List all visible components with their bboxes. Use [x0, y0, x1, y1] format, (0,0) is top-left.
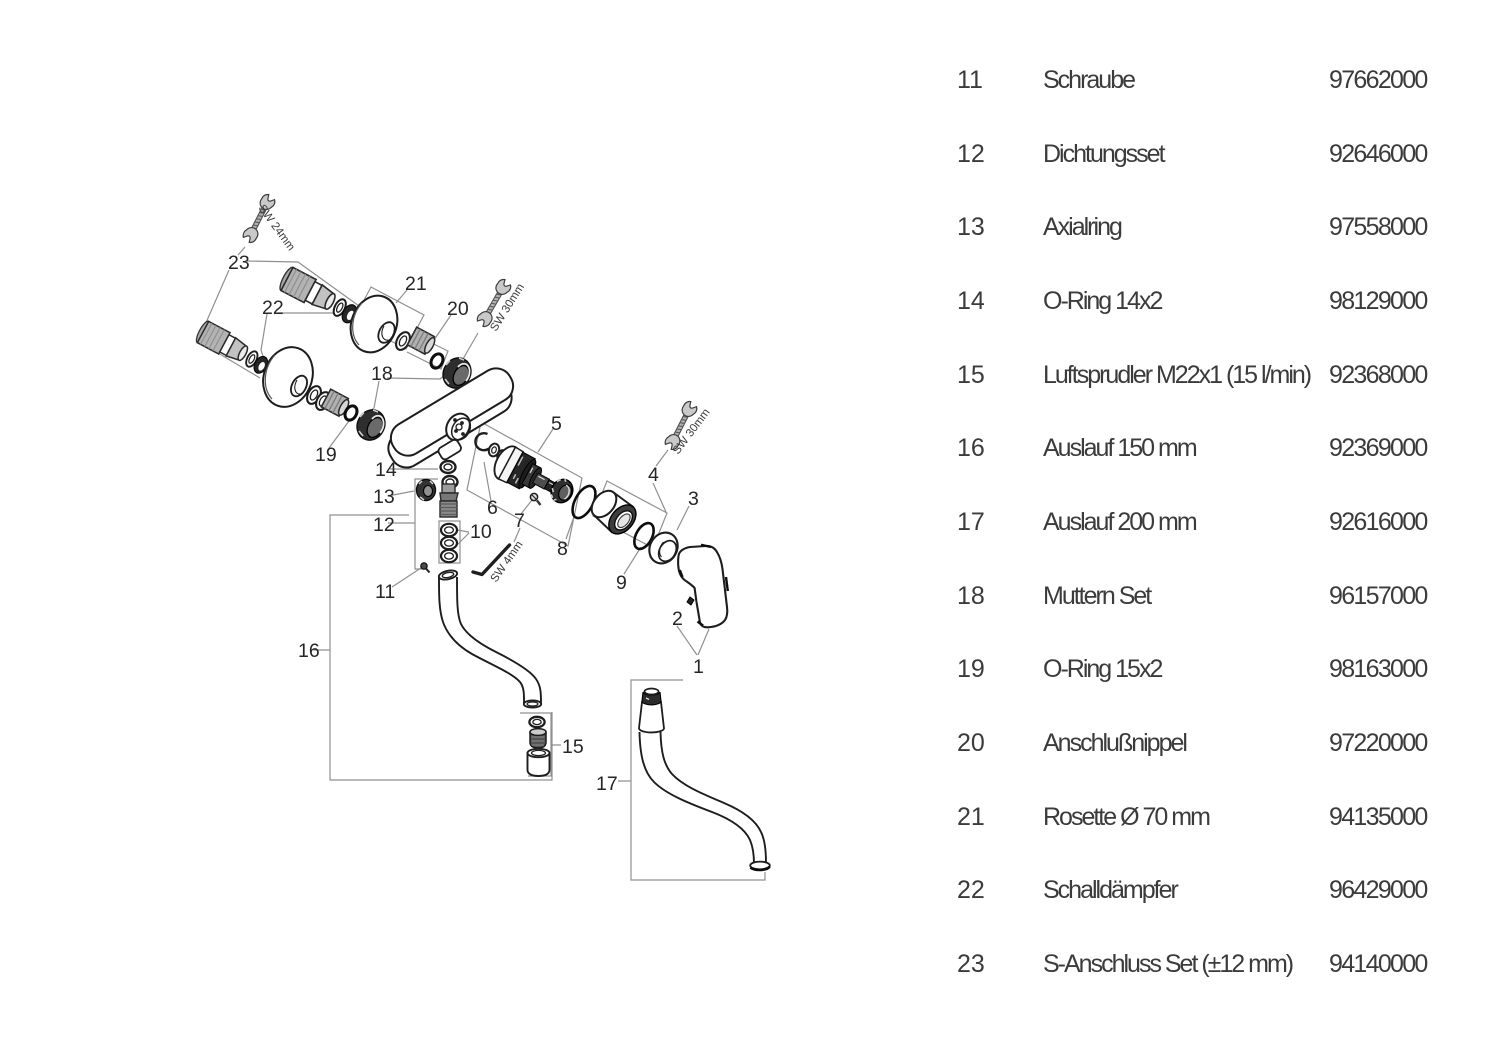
svg-text:5: 5 — [551, 413, 562, 435]
svg-text:4: 4 — [648, 464, 659, 486]
svg-text:12: 12 — [373, 514, 395, 536]
svg-text:20: 20 — [447, 298, 469, 320]
svg-text:9: 9 — [616, 572, 627, 594]
svg-text:8: 8 — [557, 538, 568, 560]
svg-text:18: 18 — [371, 363, 393, 385]
svg-text:10: 10 — [470, 521, 492, 543]
svg-text:17: 17 — [596, 773, 618, 795]
svg-text:16: 16 — [298, 640, 320, 662]
svg-text:22: 22 — [262, 297, 284, 319]
svg-text:15: 15 — [562, 736, 584, 758]
svg-text:23: 23 — [228, 252, 250, 274]
svg-text:21: 21 — [405, 273, 427, 295]
svg-text:3: 3 — [688, 488, 699, 510]
svg-text:13: 13 — [373, 486, 395, 508]
svg-text:2: 2 — [672, 608, 683, 630]
svg-text:11: 11 — [375, 581, 395, 603]
svg-text:7: 7 — [514, 510, 525, 532]
svg-text:6: 6 — [487, 497, 498, 519]
svg-text:1: 1 — [693, 656, 704, 678]
svg-text:SW 24mm: SW 24mm — [256, 203, 297, 253]
svg-text:14: 14 — [375, 459, 397, 481]
svg-text:19: 19 — [315, 444, 337, 466]
